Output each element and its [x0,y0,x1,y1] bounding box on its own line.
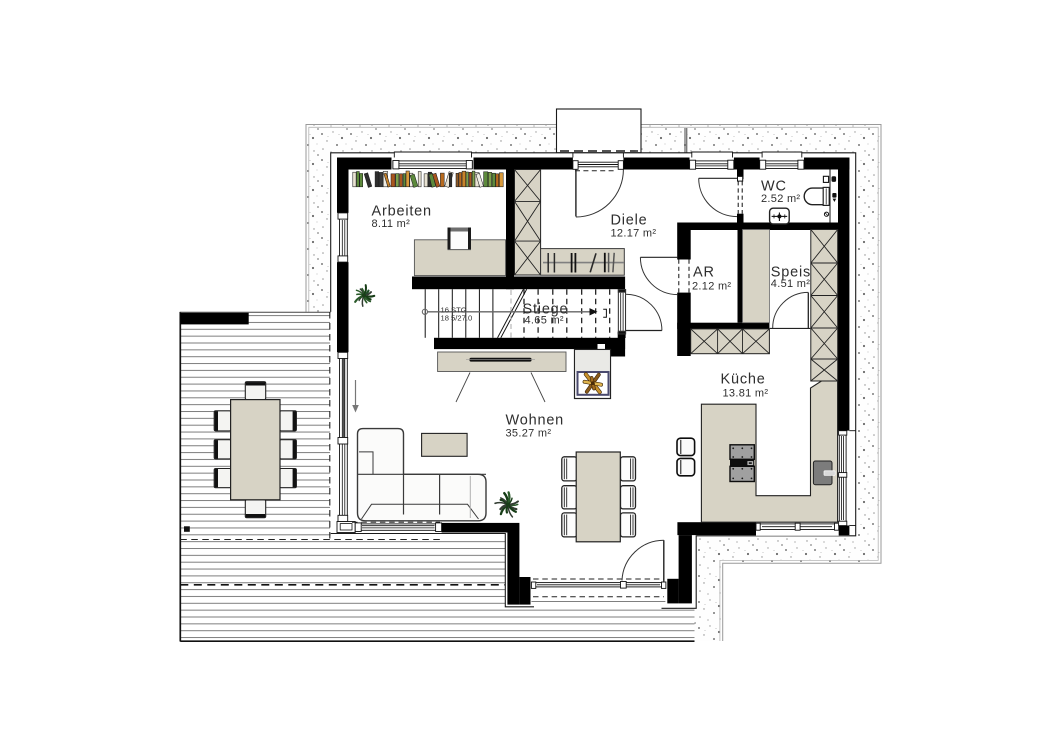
svg-text:13.81 m²: 13.81 m² [723,388,769,400]
svg-text:35.27 m²: 35.27 m² [506,428,552,440]
svg-text:18 5/27.0: 18 5/27.0 [441,313,473,322]
svg-text:2.52 m²: 2.52 m² [761,193,800,205]
svg-text:AR: AR [693,265,715,281]
svg-text:12.17 m²: 12.17 m² [611,228,657,240]
svg-text:Diele: Diele [611,213,648,229]
svg-text:4.65 m²: 4.65 m² [525,315,564,327]
svg-text:Wohnen: Wohnen [506,413,565,429]
svg-text:2.12 m²: 2.12 m² [692,281,731,293]
svg-text:Küche: Küche [721,372,766,388]
svg-text:8.11 m²: 8.11 m² [372,218,411,230]
svg-text:4.51 m²: 4.51 m² [771,278,810,290]
